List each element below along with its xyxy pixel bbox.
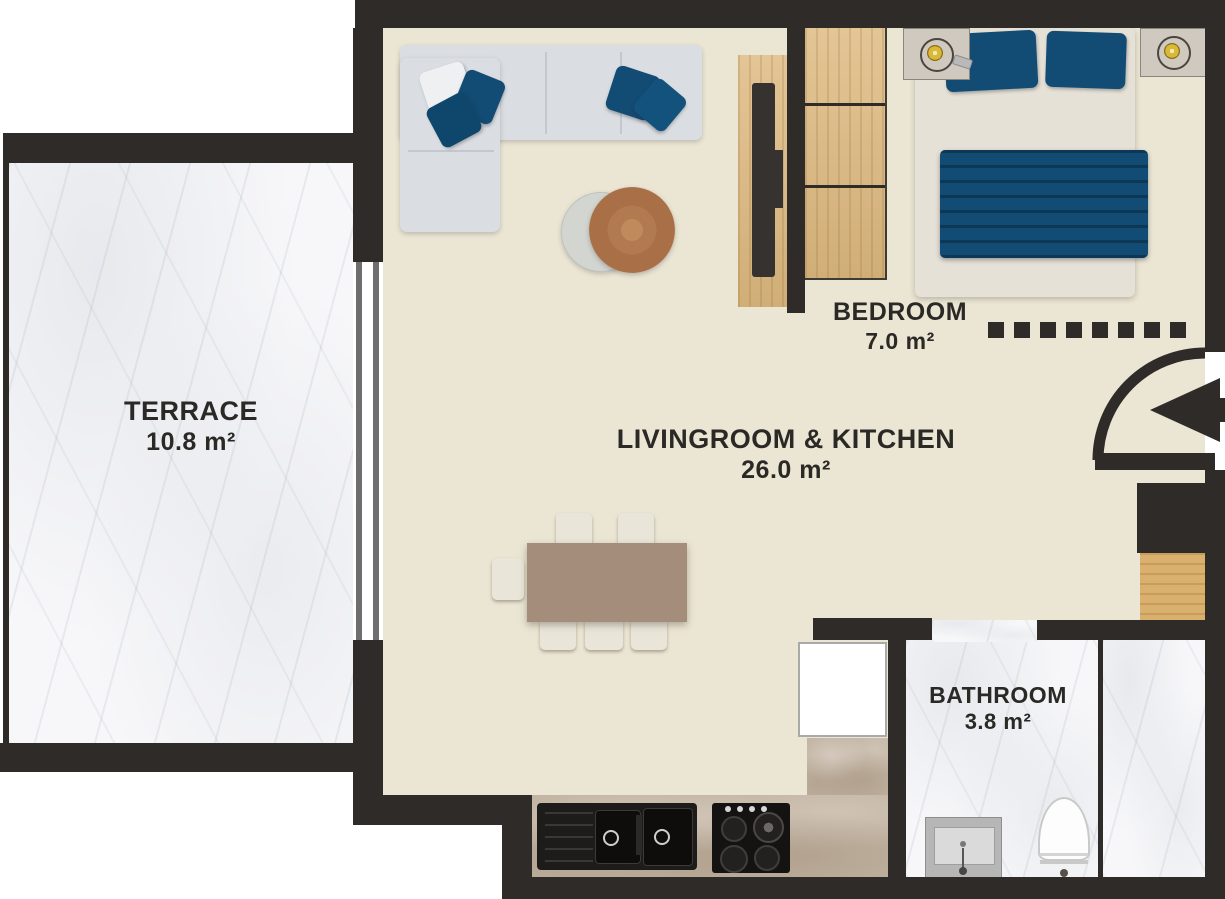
- dashed-partition: [988, 322, 1203, 338]
- wall-bottom-step-v: [502, 825, 532, 899]
- wardrobe: [805, 28, 885, 278]
- bed-pillow: [1045, 31, 1127, 90]
- sink-controls: [636, 815, 642, 855]
- hob-knob: [749, 806, 755, 812]
- window-frame-line: [356, 262, 362, 640]
- dashed-wall-segment: [1066, 322, 1082, 338]
- shower-partition-wall: [1098, 637, 1103, 877]
- tv-stand: [774, 150, 783, 208]
- hob-burner: [720, 845, 748, 873]
- kitchen-sink: [537, 803, 697, 870]
- hob-burner: [753, 812, 784, 843]
- dashed-wall-segment: [1170, 322, 1186, 338]
- dining-chair: [492, 558, 524, 600]
- tv-screen: [752, 83, 775, 277]
- room-label-bathroom: BATHROOM 3.8 m²: [929, 682, 1067, 735]
- wall-terrace-top: [3, 133, 383, 163]
- window-frame-line: [373, 262, 379, 640]
- room-area: 26.0 m²: [617, 456, 956, 486]
- dining-table: [527, 543, 687, 622]
- sink-faucet: [654, 829, 670, 845]
- floor-plan: TERRACE 10.8 m² LIVINGROOM & KITCHEN 26.…: [0, 0, 1225, 899]
- vanity-faucet-knob: [959, 867, 967, 875]
- room-name: BEDROOM: [833, 298, 967, 328]
- wall-bottom-step-h: [383, 795, 532, 825]
- vanity-drain: [960, 841, 966, 847]
- lamp-shade: [927, 45, 943, 61]
- wall-terrace-bottom: [0, 743, 357, 772]
- terrace-window: [353, 262, 383, 640]
- wall-window-lower: [353, 640, 383, 825]
- hob-knob: [725, 806, 731, 812]
- sofa-seam: [408, 150, 494, 152]
- toilet-flush-button: [1060, 869, 1068, 877]
- hob-burner: [754, 845, 780, 871]
- room-name: LIVINGROOM & KITCHEN: [617, 424, 956, 456]
- room-area: 3.8 m²: [929, 709, 1067, 735]
- wall-top: [355, 0, 1225, 28]
- lamp-shade: [1164, 43, 1180, 59]
- coffee-table-wood-top: [589, 187, 675, 273]
- bathroom-vanity: [925, 817, 1002, 879]
- wall-bedroom-partition: [787, 28, 805, 313]
- dining-chair: [585, 618, 623, 650]
- toilet-tank-line: [1040, 860, 1088, 864]
- bathroom-door: [798, 642, 887, 737]
- dining-chair: [631, 618, 667, 650]
- toilet-tank-line: [1040, 853, 1088, 856]
- dashed-wall-segment: [1014, 322, 1030, 338]
- wall-terrace-left: [3, 133, 9, 772]
- room-area: 10.8 m²: [124, 428, 258, 458]
- room-area: 7.0 m²: [833, 328, 967, 355]
- entrance-wood-floor: [1140, 553, 1205, 622]
- sink-faucet: [603, 830, 619, 846]
- entrance-door-leaf: [1095, 453, 1215, 470]
- wall-entrance-vestibule: [1137, 483, 1205, 553]
- dining-chair: [618, 513, 654, 547]
- dining-chair: [540, 618, 576, 650]
- shower-floor: [1103, 637, 1205, 877]
- entry-arrow-shaft: [1210, 398, 1225, 422]
- room-label-bedroom: BEDROOM 7.0 m²: [833, 298, 967, 355]
- bed-blanket: [940, 150, 1148, 258]
- room-label-livingroom-kitchen: LIVINGROOM & KITCHEN 26.0 m²: [617, 424, 956, 485]
- dashed-wall-segment: [1144, 322, 1160, 338]
- sofa-seam: [545, 52, 547, 134]
- hob-knob: [737, 806, 743, 812]
- hob-burner: [721, 816, 747, 842]
- gas-hob: [712, 803, 790, 873]
- dashed-wall-segment: [988, 322, 1004, 338]
- dining-chair: [556, 513, 592, 547]
- wardrobe-divider: [805, 103, 885, 106]
- wall-bottom: [532, 877, 1225, 899]
- wall-bathroom-top-left: [813, 618, 932, 640]
- wall-right-lower: [1205, 470, 1225, 899]
- wall-bathroom-top-right: [1037, 620, 1225, 640]
- sink-drainboard: [545, 812, 593, 862]
- dashed-wall-segment: [1118, 322, 1134, 338]
- wardrobe-divider: [805, 185, 885, 188]
- wall-bathroom-left: [888, 618, 906, 877]
- room-name: BATHROOM: [929, 682, 1067, 709]
- dashed-wall-segment: [1092, 322, 1108, 338]
- wall-window-upper: [353, 28, 383, 262]
- room-label-terrace: TERRACE 10.8 m²: [124, 396, 258, 457]
- dashed-wall-segment: [1040, 322, 1056, 338]
- room-name: TERRACE: [124, 396, 258, 428]
- hallway-tile-floor: [807, 738, 888, 795]
- wall-right-upper: [1205, 0, 1225, 352]
- bathroom-doorway-floor: [932, 620, 1037, 642]
